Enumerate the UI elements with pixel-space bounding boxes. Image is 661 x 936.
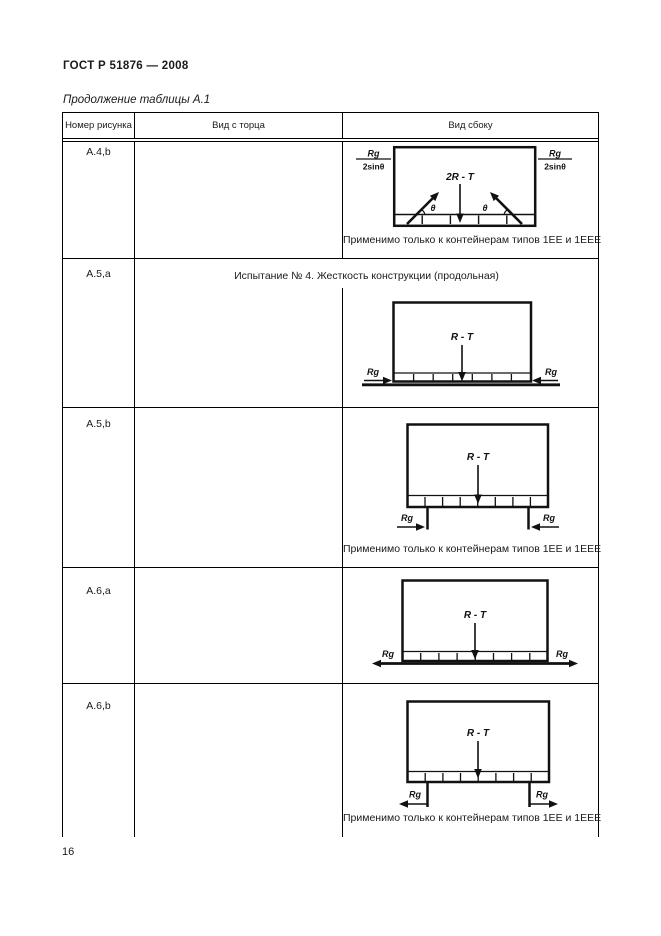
rg-label-right: Rg [543, 513, 555, 523]
rg-label-right: Rg [556, 649, 568, 659]
document-page: ГОСТ Р 51876 — 2008 Продолжение таблицы … [0, 0, 661, 936]
rg-label-right: Rg [536, 790, 548, 800]
side-view-cell-a4b: 2R - T θ θ Rg 2sinθ [343, 142, 598, 258]
diagram-a5a-side-view: Rg Rg R - T [135, 259, 598, 407]
end-view-cell-a6a [135, 568, 343, 683]
diagram-a6a-side-view: Rg Rg R - T [343, 568, 598, 683]
table-row-a4b: А.4,b 2R - T θ [63, 142, 598, 259]
rg-label-right: Rg [545, 367, 557, 377]
table-a1: Номер рисунка Вид с торца Вид сбоку А.4,… [62, 112, 599, 837]
force-label-r-t: R - T [467, 452, 490, 463]
rg-label-left: Rg [382, 649, 394, 659]
header-side-view: Вид сбоку [343, 113, 598, 138]
merged-cell-a5a: Испытание № 4. Жесткость конструкции (пр… [135, 259, 598, 407]
header-figure-number: Номер рисунка [63, 113, 135, 138]
angle-label-right: θ [482, 203, 487, 213]
end-view-cell-a5b [135, 408, 343, 567]
figure-number-a6a: А.6,а [63, 568, 134, 597]
fraction-right-numerator: Rg [549, 149, 561, 159]
side-view-cell-a6a: Rg Rg R - T [343, 568, 598, 683]
fraction-right-denominator: 2sinθ [544, 162, 566, 172]
table-row-a6a: А.6,а Rg Rg R - T [63, 568, 598, 684]
angle-label-left: θ [430, 203, 435, 213]
table-continuation-caption: Продолжение таблицы А.1 [63, 94, 210, 106]
table-row-a5b: А.5,b Rg Rg [63, 408, 598, 568]
side-view-cell-a6b: Rg Rg R - T Применимо только к контейнер… [343, 684, 598, 837]
table-header-row: Номер рисунка Вид с торца Вид сбоку [63, 113, 598, 139]
figure-number-a6b: А.6,b [63, 684, 134, 712]
force-label-2r-t: 2R - T [445, 172, 475, 183]
rg-label-left: Rg [367, 367, 379, 377]
fraction-left-denominator: 2sinθ [363, 162, 385, 172]
document-code: ГОСТ Р 51876 — 2008 [63, 60, 189, 72]
end-view-cell-a4b [135, 142, 343, 258]
rg-label-left: Rg [401, 513, 413, 523]
fraction-left-numerator: Rg [368, 149, 380, 159]
figure-number-a4b: А.4,b [63, 142, 134, 158]
header-end-view: Вид с торца [135, 113, 343, 138]
note-containers-1ee: Применимо только к контейнерам типов 1ЕЕ… [343, 812, 598, 824]
table-row-a5a: А.5,а Испытание № 4. Жесткость конструкц… [63, 259, 598, 408]
end-view-cell-a6b [135, 684, 343, 837]
force-label-r-t: R - T [451, 332, 474, 343]
force-label-r-t: R - T [467, 728, 490, 739]
table-row-a6b: А.6,b Rg Rg [63, 684, 598, 837]
figure-number-a5b: А.5,b [63, 408, 134, 430]
side-view-cell-a5b: Rg Rg R - T Применимо только к контейнер… [343, 408, 598, 567]
note-containers-1ee: Применимо только к контейнерам типов 1ЕЕ… [343, 234, 598, 246]
rg-label-left: Rg [409, 790, 421, 800]
figure-number-a5a: А.5,а [63, 259, 134, 280]
force-label-r-t: R - T [464, 610, 487, 621]
note-containers-1ee: Применимо только к контейнерам типов 1ЕЕ… [343, 543, 598, 555]
page-number: 16 [62, 846, 74, 858]
